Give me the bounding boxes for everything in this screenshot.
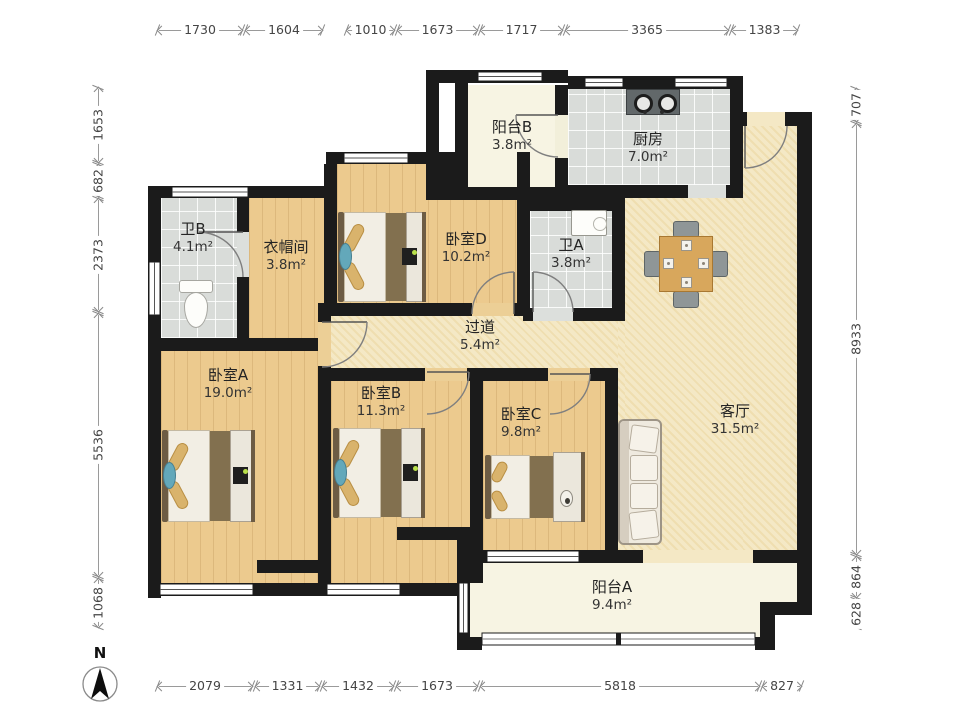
dim-left-0: 1653 <box>90 87 106 163</box>
dim-right-2: 864 <box>848 556 864 598</box>
dim-right-0: 707 <box>848 88 864 122</box>
compass-north-label: N <box>80 644 120 662</box>
dim-left-4: 1068 <box>90 578 106 628</box>
dim-bottom-1: 1331 <box>255 678 320 694</box>
bed-icon <box>162 430 255 522</box>
room-label-balcony-b: 阳台B3.8m² <box>492 118 532 154</box>
room-label-bedroom-d: 卧室D10.2m² <box>442 230 491 266</box>
room-label-balcony-a: 阳台A9.4m² <box>592 578 632 614</box>
toilet-icon <box>179 280 213 330</box>
dim-top-6: 1383 <box>731 22 798 38</box>
dim-top-3: 1673 <box>397 22 478 38</box>
dim-right-1: 8933 <box>848 123 864 555</box>
stove-icon <box>626 89 680 115</box>
room-label-bath-b: 卫B4.1m² <box>173 220 213 256</box>
floor-plan-canvas: 阳台B3.8m² 厨房7.0m² 卫B4.1m² 衣帽间3.8m² 卧室D10.… <box>0 0 960 715</box>
dim-top-0: 1730 <box>157 22 243 38</box>
bed-icon <box>338 212 426 302</box>
dim-right-3: 628 <box>848 599 864 628</box>
dim-top-1: 1604 <box>245 22 323 38</box>
dim-bottom-2: 1432 <box>322 678 394 694</box>
room-label-bedroom-b: 卧室B11.3m² <box>357 384 406 420</box>
room-label-cloakroom: 衣帽间3.8m² <box>263 238 308 274</box>
room-label-kitchen: 厨房7.0m² <box>628 130 668 166</box>
bed-icon <box>485 452 585 522</box>
room-label-bedroom-c: 卧室C9.8m² <box>501 405 541 441</box>
washing-machine-icon <box>571 210 607 236</box>
dim-left-2: 2373 <box>90 198 106 312</box>
dim-bottom-5: 827 <box>762 678 802 694</box>
dim-bottom-0: 2079 <box>157 678 253 694</box>
compass-needle-icon <box>80 662 120 704</box>
bed-icon <box>333 428 425 518</box>
room-label-hallway: 过道5.4m² <box>460 318 500 354</box>
walls-windows-doors-layer <box>0 0 960 715</box>
dining-table-icon <box>644 221 728 308</box>
dim-bottom-4: 5818 <box>480 678 760 694</box>
dim-bottom-3: 1673 <box>396 678 478 694</box>
dim-top-4: 1717 <box>480 22 563 38</box>
room-label-living-room: 客厅31.5m² <box>711 402 760 438</box>
room-label-bath-a: 卫A3.8m² <box>551 236 591 272</box>
dim-top-2: 1010 <box>346 22 395 38</box>
dim-left-3: 5536 <box>90 313 106 577</box>
dim-left-1: 682 <box>90 164 106 197</box>
room-label-bedroom-a: 卧室A19.0m² <box>204 366 253 402</box>
dim-top-5: 3365 <box>565 22 729 38</box>
sofa-icon <box>618 419 662 545</box>
compass-icon: N <box>80 644 120 708</box>
